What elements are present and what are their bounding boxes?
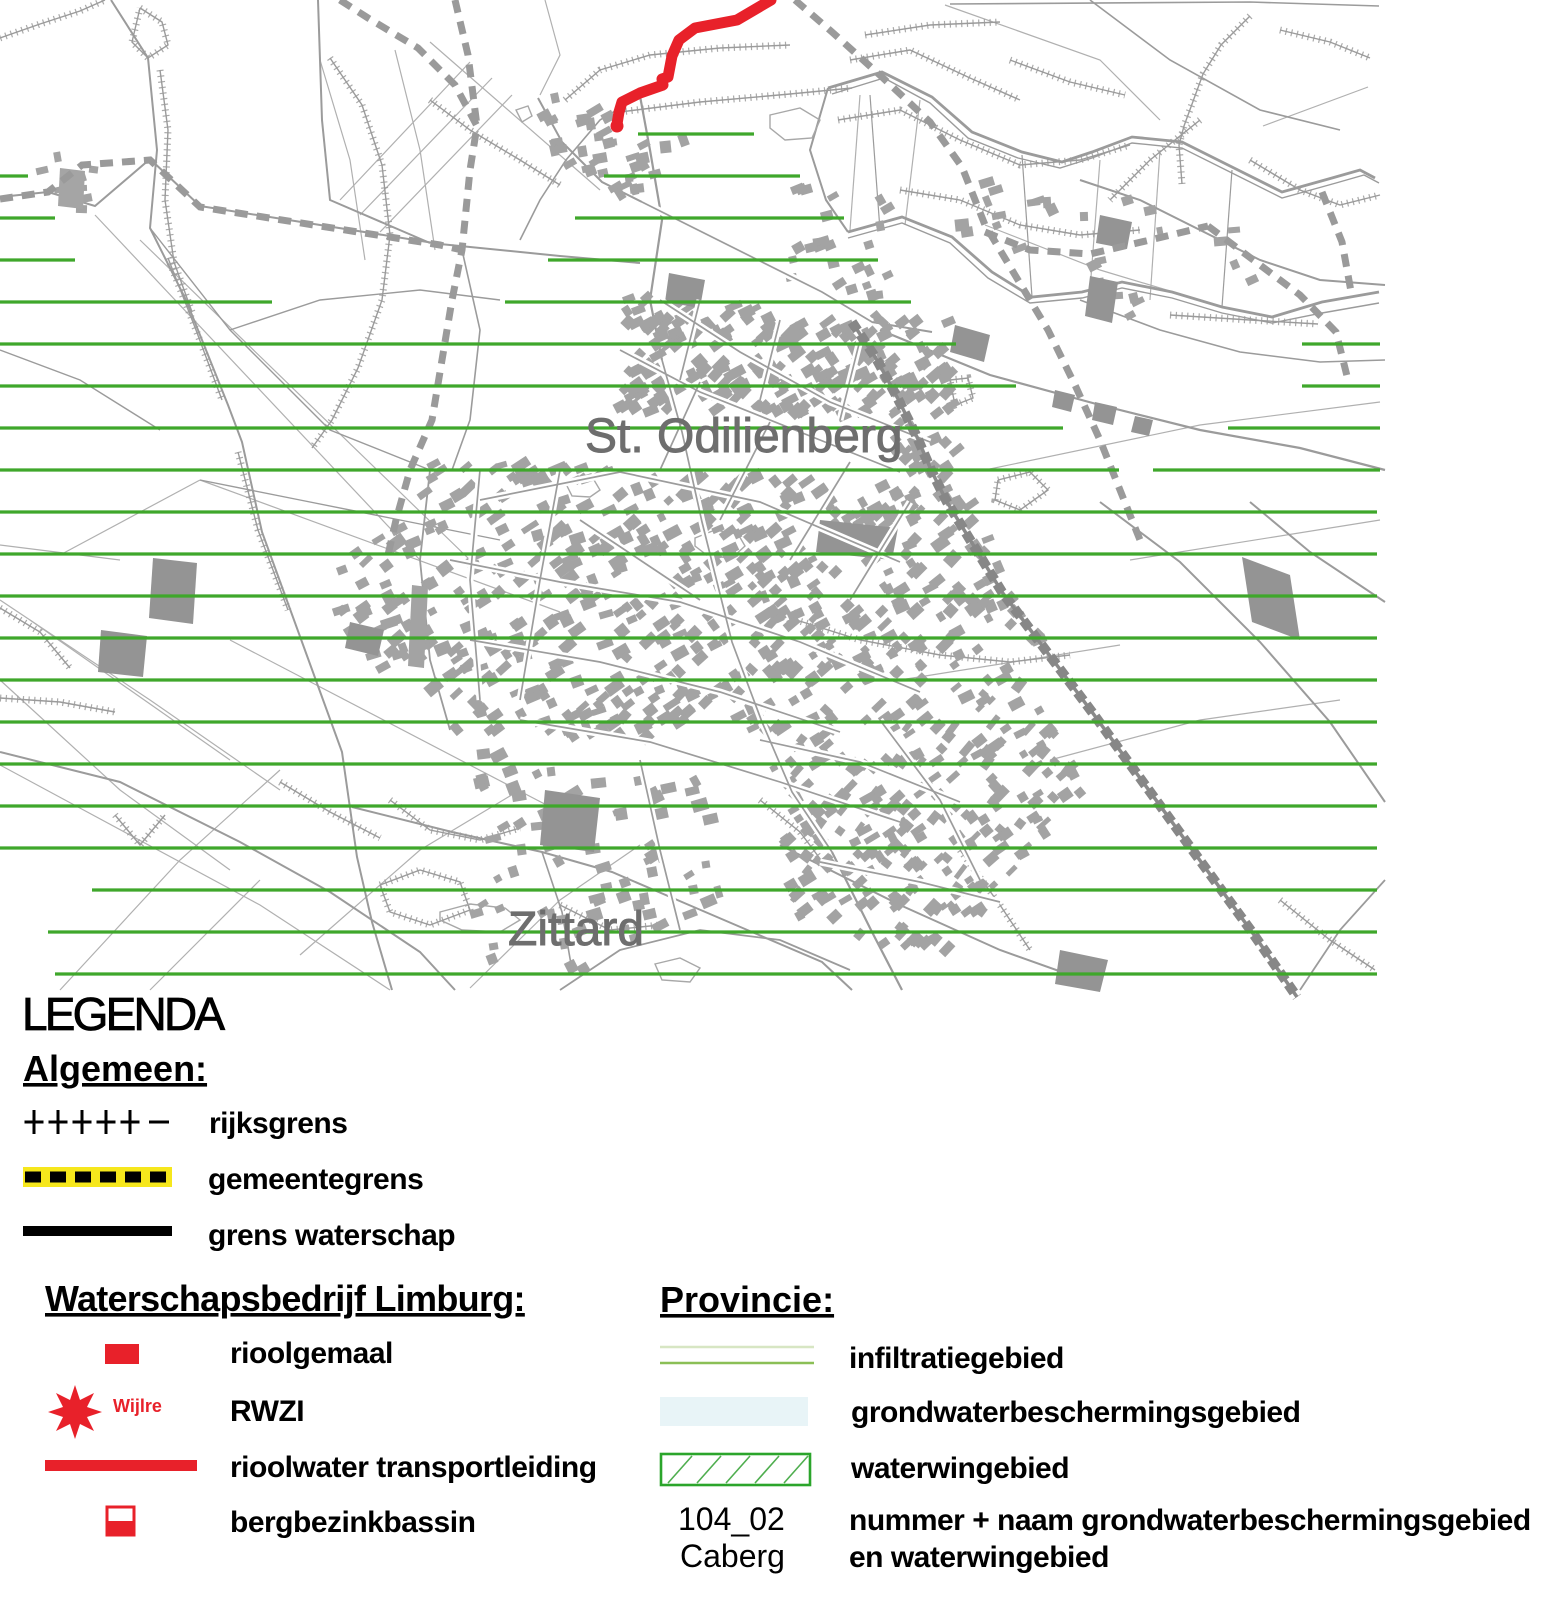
svg-text:LEGENDA: LEGENDA (22, 988, 225, 1040)
svg-text:infiltratiegebied: infiltratiegebied (849, 1342, 1064, 1375)
svg-text:grens waterschap: grens waterschap (208, 1219, 455, 1252)
svg-text:Algemeen:: Algemeen: (23, 1048, 207, 1089)
svg-text:waterwingebied: waterwingebied (850, 1452, 1069, 1485)
svg-text:en waterwingebied: en waterwingebied (849, 1541, 1109, 1574)
svg-text:grondwaterbeschermingsgebied: grondwaterbeschermingsgebied (851, 1396, 1300, 1429)
svg-text:St. Odilienberg: St. Odilienberg (585, 410, 903, 463)
svg-text:gemeentegrens: gemeentegrens (208, 1163, 423, 1196)
svg-text:Provincie:: Provincie: (660, 1279, 834, 1320)
svg-text:Zittard: Zittard (508, 903, 644, 956)
svg-text:Wijlre: Wijlre (113, 1396, 162, 1416)
svg-text:rioolwater transportleiding: rioolwater transportleiding (230, 1451, 597, 1484)
svg-text:104_02: 104_02 (678, 1501, 785, 1537)
svg-text:RWZI: RWZI (230, 1395, 304, 1428)
svg-text:rijksgrens: rijksgrens (209, 1107, 347, 1140)
svg-text:rioolgemaal: rioolgemaal (230, 1337, 393, 1370)
svg-text:Waterschapsbedrijf Limburg:: Waterschapsbedrijf Limburg: (45, 1278, 525, 1319)
svg-text:bergbezinkbassin: bergbezinkbassin (230, 1506, 475, 1539)
svg-text:nummer + naam grondwaterbesche: nummer + naam grondwaterbeschermingsgebi… (849, 1504, 1531, 1537)
svg-text:Caberg: Caberg (680, 1538, 785, 1574)
